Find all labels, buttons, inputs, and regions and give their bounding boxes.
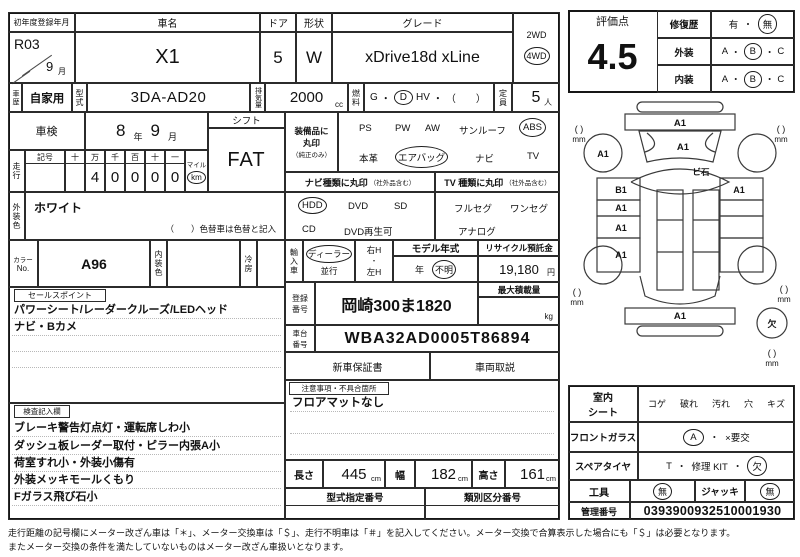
- exterior-grade-label: 外装: [657, 38, 711, 65]
- equipment-label-cell: 装備品に 丸印 （純正のみ）: [285, 112, 338, 172]
- fuel-paren: （ ）: [446, 90, 486, 105]
- mileage-unit-mile: マイル: [187, 159, 207, 169]
- fuel-dot-2: ・: [433, 90, 443, 105]
- inspection-line-4: 外装メッキモールくもり: [12, 472, 281, 489]
- repair-no-circled: 無: [758, 14, 778, 34]
- max-load-cell: kg: [478, 297, 560, 325]
- sales-point-line-1: パワーシート/レーダークルーズ/LEDヘッド: [12, 302, 281, 319]
- recycle-cell: 19,180 円: [478, 256, 560, 282]
- front-glass-label: フロントガラス: [568, 422, 638, 452]
- shift-value: FAT: [208, 128, 285, 192]
- mileage-col-man: 万4: [85, 150, 105, 192]
- max-load-header: 最大積載量: [478, 282, 560, 297]
- auction-sheet: 初年度登録年月 車名 ドア 形状 グレード R03 9 月 X1 5 W xDr…: [0, 0, 800, 557]
- displacement-value-cell: 2000 cc: [265, 83, 348, 112]
- jack-label: ジャッキ: [695, 480, 745, 502]
- class-no-cell: 類別区分番号: [425, 488, 560, 520]
- repair-history-value: 有 ・ 無: [711, 10, 795, 38]
- rear-right-wheel: [738, 246, 776, 284]
- width-unit: cm: [458, 474, 468, 483]
- spare-kit: 修理 KIT: [691, 459, 727, 473]
- inspection-line-5: Fガラス飛び石小: [12, 489, 281, 506]
- front-bumper-mark: A1: [674, 118, 687, 129]
- recycle-unit: 円: [547, 267, 555, 278]
- ac-value: [257, 240, 285, 287]
- mileage-col-ichi: 一0: [165, 150, 185, 192]
- notes-line-2: [290, 412, 554, 434]
- spare-t: T: [666, 461, 672, 472]
- mgmt-no-label: 管理番号: [568, 502, 630, 520]
- tools-label: 工具: [568, 480, 630, 502]
- shaken-value-cell: 8 年 9 月: [85, 112, 208, 150]
- equip-abs-circled: ABS: [519, 118, 546, 137]
- glass-ng: ×要交: [725, 430, 750, 444]
- equip-leather: 本革: [359, 151, 378, 165]
- front-left-wheel-mark: A1: [597, 149, 609, 159]
- right-panel-3: [720, 216, 763, 238]
- grade-header: グレード: [332, 12, 513, 32]
- tv-oneseg: ワンセグ: [510, 201, 548, 215]
- model-year-unknown-circled: 不明: [432, 260, 456, 279]
- equipment-options-cell: PS PW AW サンルーフ ABS 本革 エアバッグ ナビ TV: [338, 112, 560, 172]
- height-cell: 161 cm: [505, 460, 560, 488]
- front-strip: [637, 102, 723, 112]
- mileage-col-sen: 千0: [105, 150, 125, 192]
- reg-no-value: 岡崎300ま1820: [315, 282, 478, 325]
- mileage-col-10man: 十: [65, 150, 85, 192]
- drive-type-cell: 2WD 4WD: [513, 12, 560, 83]
- width-value: 182: [431, 466, 456, 483]
- displacement-label: 排気量: [250, 83, 265, 112]
- reg-no-label: 登録番号: [285, 282, 315, 325]
- mileage-col-hyaku: 百0: [125, 150, 145, 192]
- sales-point-line-3: [12, 336, 281, 352]
- shaken-year: 8: [116, 121, 125, 141]
- color-no-value: A96: [38, 240, 150, 287]
- model-code-label: 型式: [72, 83, 87, 112]
- grade-value: xDrive18d xLine: [332, 32, 513, 83]
- nav-cd: CD: [302, 224, 316, 235]
- inspection-line-3: 荷室すれ小・外装小傷有: [12, 455, 281, 472]
- inspection-tab: 検査記入欄: [14, 405, 70, 418]
- tv-type-header: TV 種類に丸印 （社外品含む）: [435, 172, 560, 192]
- repair-history-label: 修復歴: [657, 10, 711, 38]
- equip-navi: ナビ: [475, 151, 494, 165]
- mileage-sign-value: [26, 164, 64, 191]
- length-label: 長さ: [285, 460, 323, 488]
- doors-header: ドア: [260, 12, 296, 32]
- fuel-options-cell: G ・ D HV ・ （ ）: [364, 83, 494, 112]
- inspection-line-2: ダッシュ板レーダー取付・ピラー内張A小: [12, 437, 281, 455]
- color-no-label: カラー No.: [8, 240, 38, 287]
- body-color-note: （ ）色替車は色替と記入: [165, 223, 276, 235]
- interior-grade-label: 内装: [657, 65, 711, 93]
- notes-line-1: フロアマットなし: [290, 397, 554, 412]
- reg-month: 9: [46, 59, 53, 74]
- equip-ps: PS: [359, 123, 372, 134]
- drive-2wd: 2WD: [527, 30, 547, 40]
- right-mark-1: A1: [733, 185, 745, 195]
- import-label: 輸入車: [285, 240, 303, 282]
- nav-dvd: DVD: [348, 201, 368, 212]
- vin-label: 車台番号: [285, 325, 315, 352]
- mgmt-no-value: 0393900932510001930: [630, 502, 795, 520]
- spare-tire-label: スペアタイヤ: [568, 452, 638, 480]
- spare-tire-value: T ・ 修理 KIT ・ 欠: [638, 452, 795, 480]
- recycle-value: 19,180: [499, 262, 539, 277]
- capacity-unit: 人: [544, 97, 552, 108]
- nav-sd: SD: [394, 201, 407, 212]
- mileage-col-ju: 十0: [145, 150, 165, 192]
- repair-yes: 有: [729, 17, 739, 31]
- length-cell: 445 cm: [323, 460, 385, 488]
- right-panel-2: [720, 200, 763, 216]
- height-value: 161: [520, 466, 545, 483]
- tv-fullseg: フルセグ: [454, 201, 492, 215]
- sales-point-line-2: ナビ・Bカメ: [12, 319, 281, 336]
- car-name-value: X1: [75, 32, 260, 83]
- body-color-value: ホワイト: [34, 199, 82, 216]
- left-mark-3: A1: [615, 223, 627, 233]
- left-mark-2: A1: [615, 203, 627, 213]
- seat-label: 室内シート: [568, 385, 638, 422]
- shaken-month: 9: [151, 121, 160, 141]
- fuel-label: 燃料: [348, 83, 364, 112]
- handle-left: 左H: [367, 266, 382, 278]
- equip-pw: PW: [395, 123, 410, 134]
- model-code-value: 3DA-AD20: [87, 83, 250, 112]
- recycle-header: リサイクル預託金: [478, 240, 560, 256]
- exterior-b-circled: B: [744, 43, 762, 60]
- interior-b-circled: B: [744, 71, 762, 88]
- nav-dvd-play: DVD再生可: [344, 224, 393, 238]
- warranty-cell: 新車保証書: [285, 352, 430, 380]
- notes-line-3: [290, 434, 554, 455]
- capacity-label: 定員: [494, 83, 512, 112]
- height-unit: cm: [546, 474, 556, 483]
- left-mark-1: B1: [615, 185, 627, 195]
- shift-header: シフト: [208, 112, 285, 128]
- height-label: 高さ: [472, 460, 505, 488]
- width-label: 幅: [385, 460, 415, 488]
- sales-point-line-4: [12, 352, 281, 368]
- hood-mark: A1: [677, 142, 690, 153]
- displacement-value: 2000: [290, 89, 323, 106]
- nav-type-header: ナビ種類に丸印 （社外品含む）: [285, 172, 435, 192]
- tv-analog: アナログ: [458, 224, 496, 238]
- tools-value-cell: 無: [630, 480, 695, 502]
- mileage-label: 走行: [8, 150, 25, 192]
- left-mark-4: A1: [615, 250, 627, 260]
- history-value: 自家用: [22, 83, 72, 112]
- tread-bracket-rl: ( ): [573, 287, 582, 297]
- tread-mm-rr: mm: [777, 295, 791, 304]
- tools-none-circled: 無: [653, 483, 672, 500]
- mileage-sign-header: 記号: [26, 151, 64, 164]
- mileage-sign-col: 記号: [25, 150, 65, 192]
- windshield-mark: ビ石: [692, 167, 710, 177]
- body-color-label: 外装色: [8, 192, 25, 240]
- tread-bracket-rr: ( ): [780, 284, 789, 294]
- shaken-label: 車検: [8, 112, 85, 150]
- manual-cell: 車両取説: [430, 352, 560, 380]
- jack-value-cell: 無: [745, 480, 795, 502]
- glass-a-circled: A: [683, 429, 703, 446]
- front-glass-value: A ・ ×要交: [638, 422, 795, 452]
- vin-value: WBA32AD0005T86894: [315, 325, 560, 352]
- type-no-header: 型式指定番号: [286, 489, 424, 506]
- car-diagram: A1 A1 ビ石 A1 B1 A1 A1 A1 A1 A1 欠 ( ) mm (…: [563, 94, 797, 386]
- length-value: 445: [341, 466, 366, 483]
- first-registration-cell: R03 9 月: [8, 32, 75, 83]
- capacity-value-cell: 5 人: [512, 83, 560, 112]
- nav-type-cell: HDD DVD SD CD DVD再生可: [285, 192, 435, 240]
- model-year-cell: 年 不明: [393, 256, 478, 282]
- reg-month-unit: 月: [58, 66, 66, 77]
- import-handle-cell: 右H ・ 左H: [355, 240, 393, 282]
- drive-4wd-circled: 4WD: [524, 47, 550, 65]
- tread-bracket-fl: ( ): [575, 124, 584, 134]
- cabin-right: [693, 190, 719, 290]
- equip-airbag-circled: エアバッグ: [395, 146, 448, 168]
- width-cell: 182 cm: [415, 460, 472, 488]
- shape-header: 形状: [296, 12, 332, 32]
- history-label: 車歴: [8, 83, 22, 112]
- import-dealer-cell: ディーラー 並行: [303, 240, 355, 282]
- model-year-header: モデル年式: [393, 240, 478, 256]
- model-year-unit: 年: [415, 263, 424, 276]
- rear-strip: [637, 326, 723, 336]
- displacement-unit: cc: [335, 100, 343, 109]
- class-no-header: 類別区分番号: [426, 489, 559, 506]
- interior-color-label: 内装色: [150, 240, 167, 287]
- fuel-diesel-circled: D: [394, 90, 413, 105]
- capacity-value: 5: [532, 89, 541, 107]
- shape-value: W: [296, 32, 332, 83]
- mileage-unit-km-circled: km: [187, 171, 206, 184]
- import-dealer-circled: ディーラー: [306, 245, 352, 263]
- equip-aw: AW: [425, 123, 440, 134]
- first-registration-header: 初年度登録年月: [8, 12, 75, 32]
- interior-color-value: [167, 240, 240, 287]
- equip-tv: TV: [527, 151, 539, 162]
- footer-line-2: またメーター交換の条件を満たしていないものはメーター改ざん車扱いとなります。: [8, 540, 798, 553]
- reg-era-year: R03: [14, 36, 40, 52]
- tread-bracket-fr: ( ): [777, 124, 786, 134]
- rear-bumper-mark: A1: [674, 311, 687, 322]
- handle-right: 右H: [367, 244, 382, 256]
- cabin-left: [657, 190, 683, 290]
- spare-missing-mark: 欠: [767, 318, 776, 329]
- import-parallel: 並行: [320, 265, 337, 277]
- tread-bracket-spare: ( ): [768, 348, 777, 358]
- fuel-hv: HV: [416, 92, 430, 103]
- mileage-unit-cell: マイル km: [185, 150, 208, 192]
- length-unit: cm: [371, 474, 381, 483]
- ac-label: 冷房: [240, 240, 257, 287]
- tread-mm-fr: mm: [774, 135, 788, 144]
- footer-line-1: 走行距離の記号欄にメーター改ざん車は「＊」、メーター交換車は「＄」、走行不明車は…: [8, 526, 798, 539]
- type-no-cell: 型式指定番号: [285, 488, 425, 520]
- max-load-unit: kg: [545, 312, 553, 321]
- seat-options: コゲ 破れ 汚れ 穴 キズ: [638, 385, 795, 422]
- doors-value: 5: [260, 32, 296, 83]
- car-name-header: 車名: [75, 12, 260, 32]
- fuel-dot-1: ・: [381, 90, 391, 105]
- tread-mm-spare: mm: [765, 359, 779, 368]
- jack-none-circled: 無: [760, 483, 779, 500]
- inspection-line-1: ブレーキ警告灯点灯・運転席しわ小: [12, 419, 281, 437]
- repair-dot: ・: [743, 17, 753, 31]
- tread-mm-rl: mm: [570, 298, 584, 307]
- tread-mm-fl: mm: [572, 135, 586, 144]
- front-right-wheel: [738, 134, 776, 172]
- equip-sunroof: サンルーフ: [459, 123, 506, 137]
- handle-dot: ・: [371, 256, 378, 266]
- tv-type-cell: フルセグ ワンセグ アナログ: [435, 192, 560, 240]
- body-color-cell: ホワイト （ ）色替車は色替と記入: [25, 192, 285, 240]
- interior-grade-value: A ・ B ・ C: [711, 65, 795, 93]
- shaken-month-unit: 月: [168, 130, 177, 143]
- exterior-grade-value: A ・ B ・ C: [711, 38, 795, 65]
- nav-hdd-circled: HDD: [298, 197, 327, 214]
- evaluation-score: 4.5: [568, 26, 657, 88]
- fuel-gasoline: G: [370, 92, 378, 103]
- shaken-year-unit: 年: [133, 130, 142, 143]
- spare-missing-circled: 欠: [747, 456, 767, 476]
